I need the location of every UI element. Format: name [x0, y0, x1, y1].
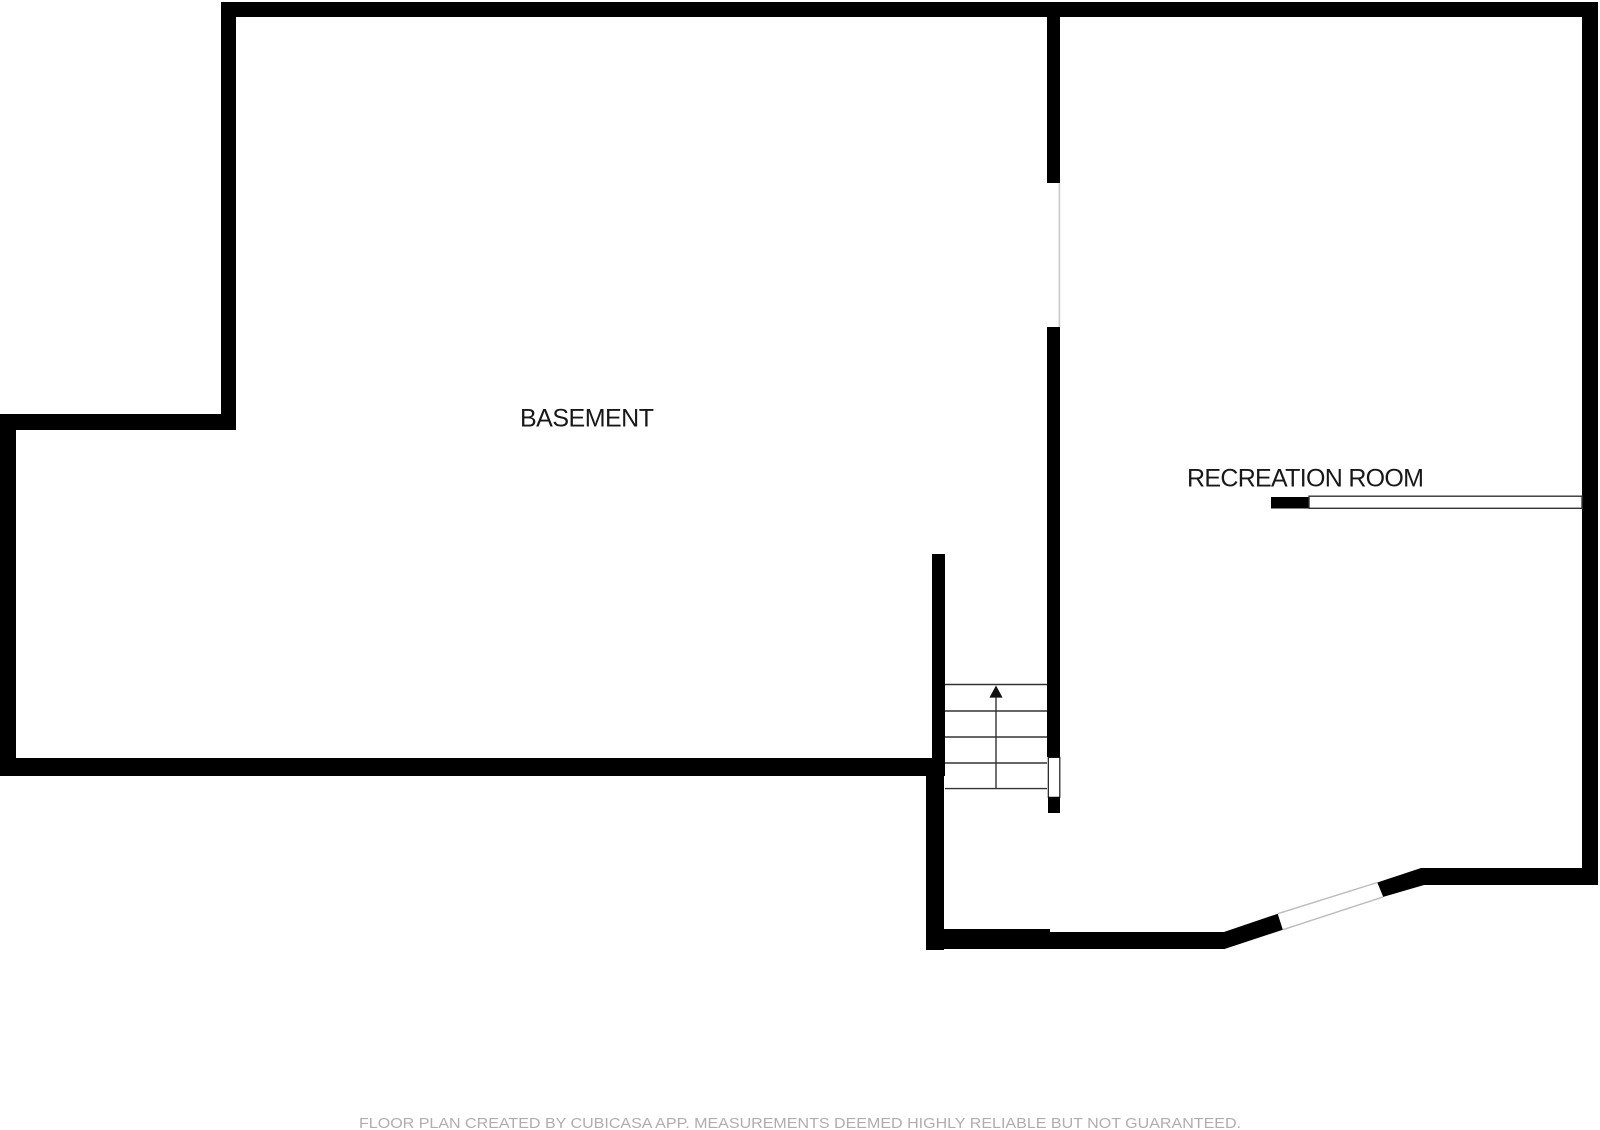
- svg-text:FLOOR PLAN CREATED BY CUBICASA: FLOOR PLAN CREATED BY CUBICASA APP. MEAS…: [359, 1116, 1241, 1130]
- svg-text:BASEMENT: BASEMENT: [520, 405, 654, 433]
- svg-text:RECREATION ROOM: RECREATION ROOM: [1187, 465, 1424, 493]
